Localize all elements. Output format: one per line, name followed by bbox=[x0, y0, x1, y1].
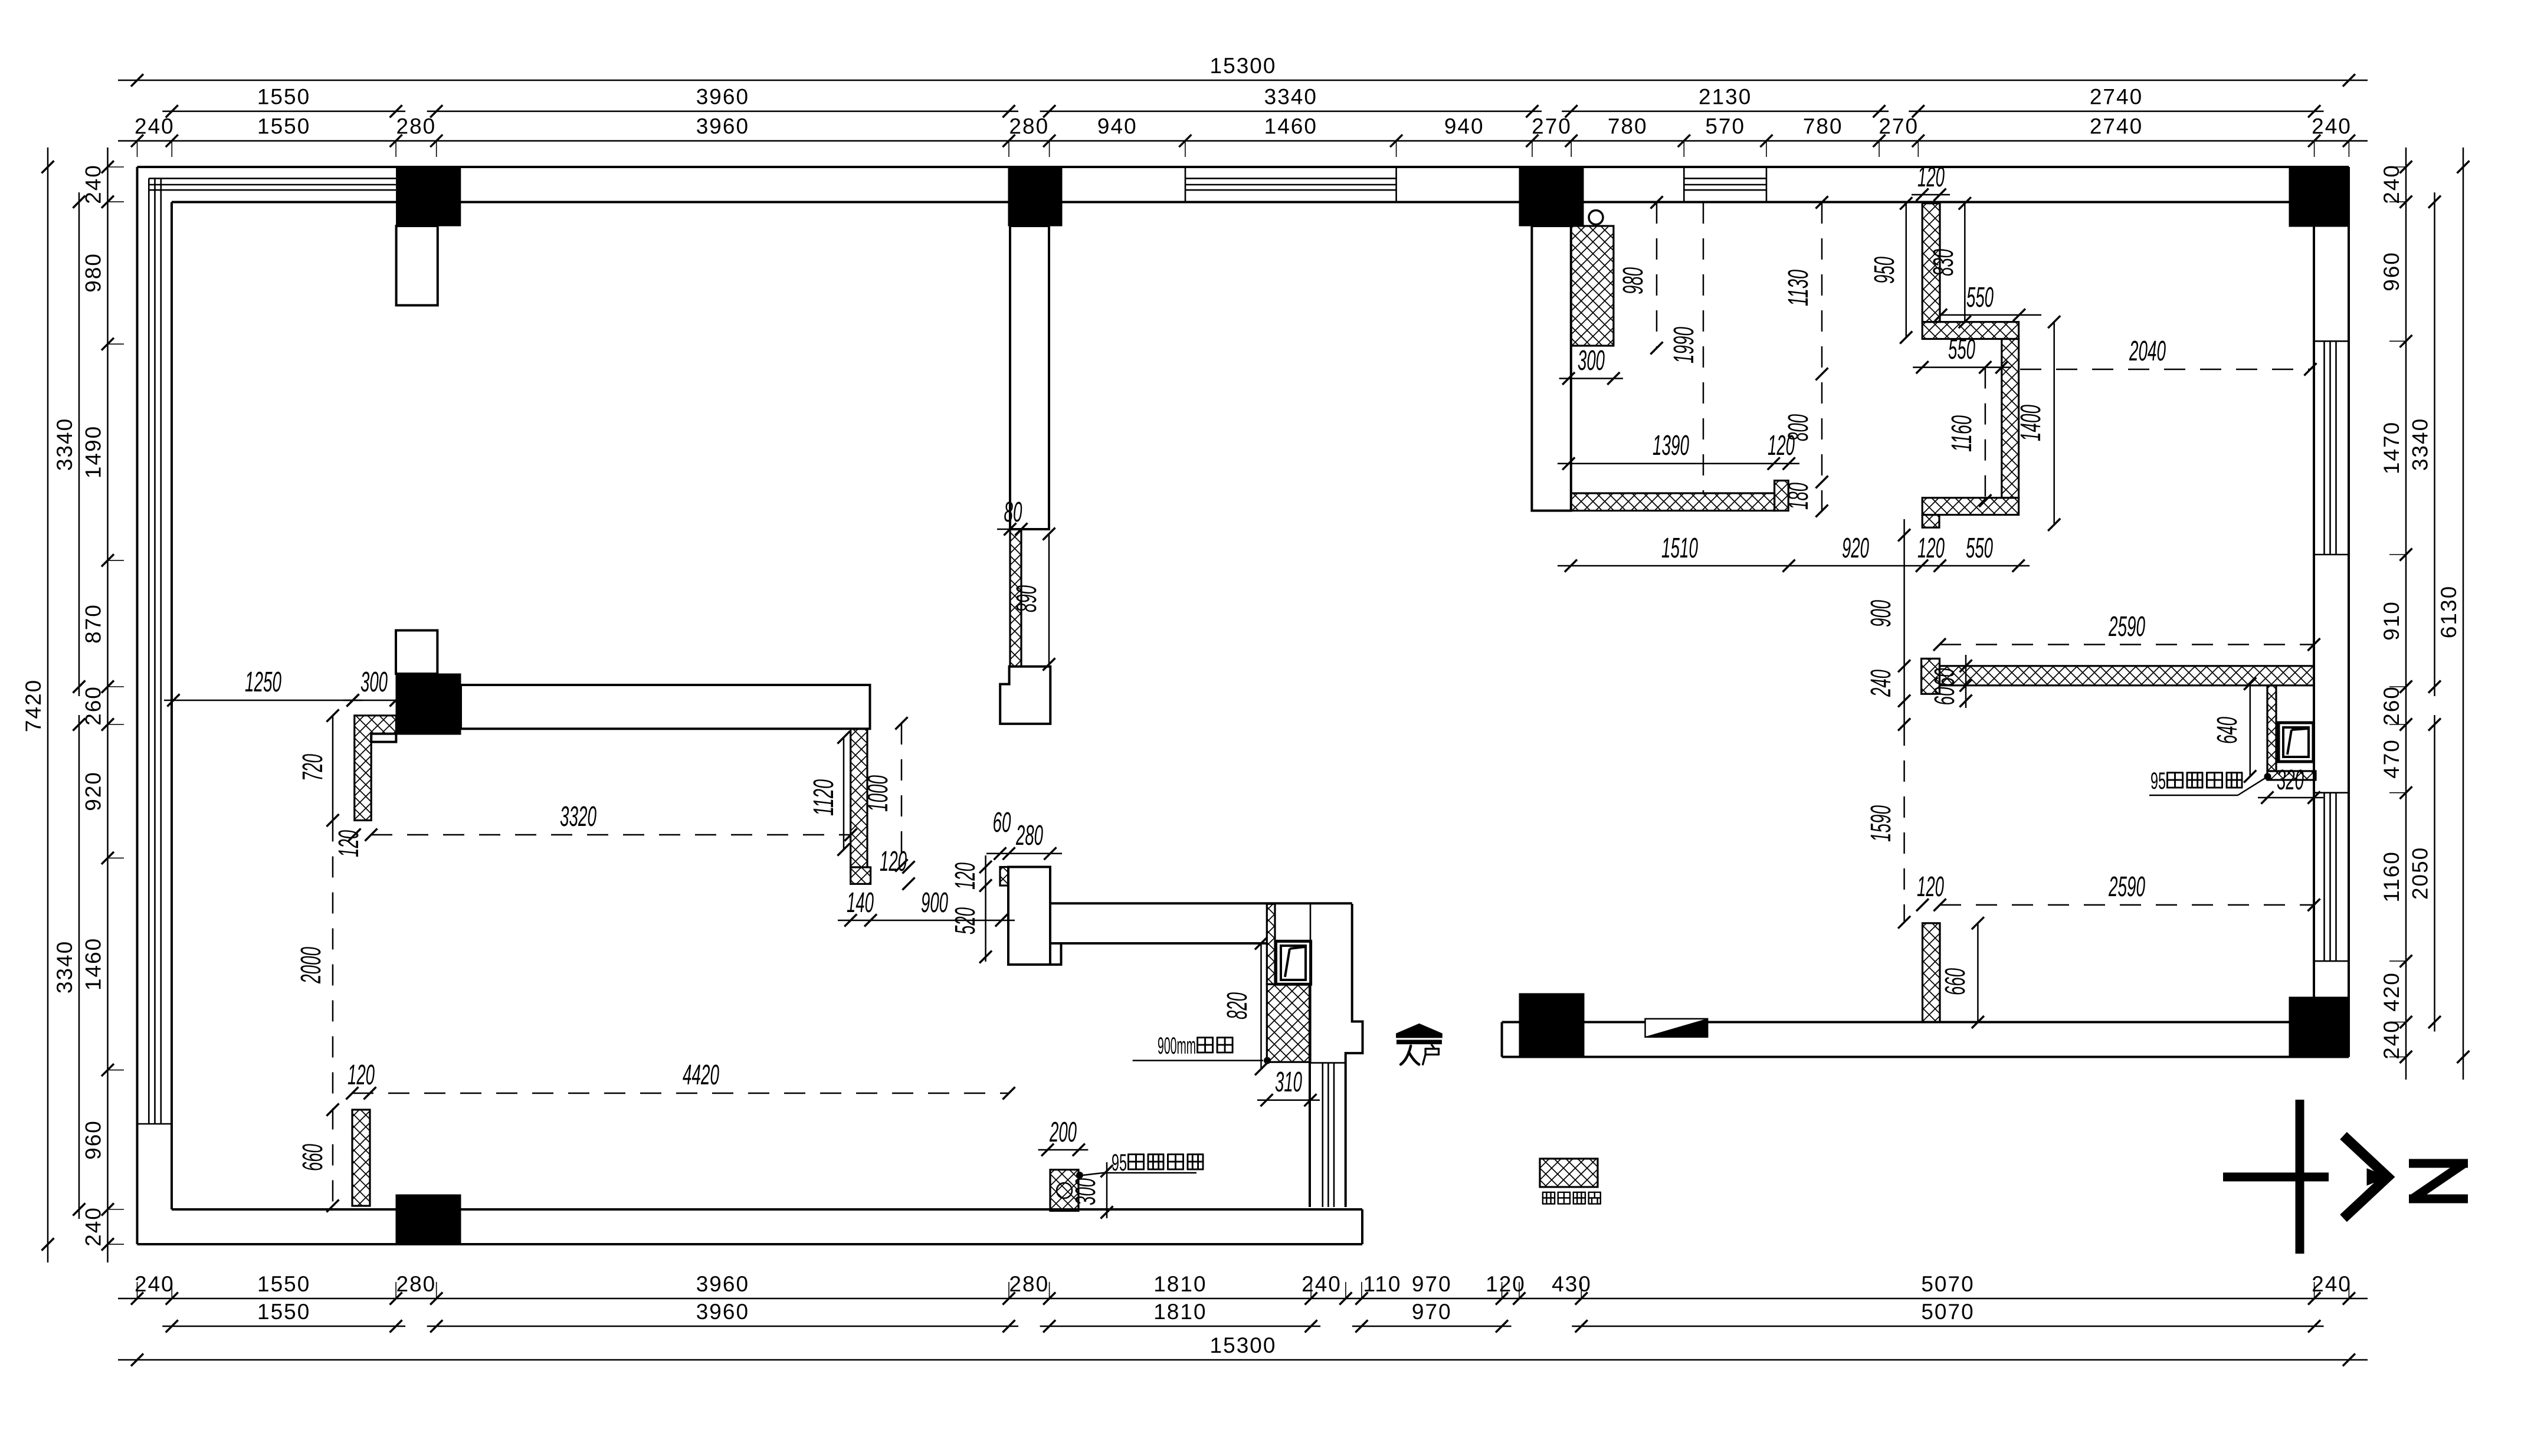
svg-text:470: 470 bbox=[2379, 739, 2404, 779]
svg-text:910: 910 bbox=[2379, 601, 2404, 641]
svg-text:1400: 1400 bbox=[2015, 405, 2047, 441]
svg-text:300: 300 bbox=[360, 667, 388, 698]
svg-text:7420: 7420 bbox=[21, 679, 45, 732]
svg-text:240: 240 bbox=[81, 1206, 106, 1247]
svg-text:950: 950 bbox=[1869, 257, 1900, 284]
svg-text:240: 240 bbox=[81, 164, 106, 204]
svg-text:240: 240 bbox=[2312, 1272, 2352, 1296]
svg-text:120: 120 bbox=[880, 846, 907, 877]
svg-text:240: 240 bbox=[2379, 1019, 2404, 1060]
svg-text:3340: 3340 bbox=[53, 940, 77, 993]
svg-text:970: 970 bbox=[1412, 1300, 1452, 1324]
svg-text:3340: 3340 bbox=[2408, 418, 2433, 471]
svg-text:940: 940 bbox=[1097, 114, 1137, 139]
svg-text:660: 660 bbox=[1940, 968, 1971, 995]
svg-text:2590: 2590 bbox=[2108, 871, 2145, 903]
svg-text:80: 80 bbox=[1004, 497, 1022, 528]
svg-text:3960: 3960 bbox=[696, 85, 749, 109]
svg-text:1160: 1160 bbox=[1946, 415, 1978, 452]
svg-text:1550: 1550 bbox=[257, 114, 310, 139]
svg-text:1550: 1550 bbox=[257, 1300, 310, 1324]
svg-text:2740: 2740 bbox=[2090, 114, 2143, 139]
svg-text:1510: 1510 bbox=[1661, 533, 1698, 564]
svg-text:780: 780 bbox=[1608, 114, 1648, 139]
svg-text:830: 830 bbox=[1928, 249, 1959, 276]
svg-text:960: 960 bbox=[2379, 251, 2404, 291]
svg-text:980: 980 bbox=[1618, 267, 1649, 294]
svg-text:3960: 3960 bbox=[696, 1300, 749, 1324]
svg-text:95: 95 bbox=[2150, 768, 2166, 794]
svg-text:120: 120 bbox=[348, 1060, 375, 1091]
svg-text:260: 260 bbox=[81, 686, 106, 726]
svg-text:60: 60 bbox=[1929, 687, 1961, 705]
svg-text:1810: 1810 bbox=[1153, 1272, 1207, 1296]
svg-text:970: 970 bbox=[1412, 1272, 1452, 1296]
svg-text:1250: 1250 bbox=[245, 667, 281, 698]
svg-text:240: 240 bbox=[1302, 1272, 1342, 1296]
svg-text:240: 240 bbox=[2312, 114, 2352, 139]
svg-text:430: 430 bbox=[1552, 1272, 1592, 1296]
svg-text:3960: 3960 bbox=[696, 114, 749, 139]
svg-text:1550: 1550 bbox=[257, 85, 310, 109]
svg-text:2000: 2000 bbox=[296, 947, 327, 984]
svg-text:1460: 1460 bbox=[1264, 114, 1317, 139]
svg-text:2040: 2040 bbox=[2129, 336, 2166, 367]
svg-text:940: 940 bbox=[1444, 114, 1484, 139]
svg-text:890: 890 bbox=[1011, 585, 1043, 612]
svg-text:120: 120 bbox=[1917, 871, 1944, 903]
svg-text:820: 820 bbox=[1222, 992, 1253, 1019]
svg-text:240: 240 bbox=[2379, 164, 2404, 204]
svg-text:420: 420 bbox=[2379, 972, 2404, 1012]
svg-text:900: 900 bbox=[921, 887, 948, 919]
svg-text:140: 140 bbox=[847, 887, 874, 919]
svg-text:200: 200 bbox=[1049, 1117, 1077, 1148]
svg-text:120: 120 bbox=[1917, 533, 1945, 564]
svg-text:4420: 4420 bbox=[683, 1060, 719, 1091]
svg-text:3320: 3320 bbox=[560, 801, 596, 832]
svg-text:240: 240 bbox=[135, 1272, 175, 1296]
svg-text:660: 660 bbox=[297, 1144, 329, 1171]
svg-text:2050: 2050 bbox=[2408, 847, 2433, 900]
svg-text:1550: 1550 bbox=[257, 1272, 310, 1296]
svg-text:550: 550 bbox=[1966, 533, 1993, 564]
svg-text:280: 280 bbox=[1015, 820, 1043, 851]
svg-text:3340: 3340 bbox=[53, 418, 77, 471]
svg-text:920: 920 bbox=[81, 771, 106, 811]
svg-text:920: 920 bbox=[1842, 533, 1869, 564]
svg-text:1160: 1160 bbox=[2379, 851, 2404, 903]
svg-text:960: 960 bbox=[81, 1120, 106, 1160]
svg-text:1000: 1000 bbox=[863, 775, 894, 812]
svg-text:270: 270 bbox=[1532, 114, 1572, 139]
svg-text:1120: 1120 bbox=[808, 779, 840, 816]
svg-text:800: 800 bbox=[1783, 414, 1814, 441]
svg-text:1490: 1490 bbox=[81, 425, 106, 478]
svg-text:280: 280 bbox=[1009, 1272, 1049, 1296]
svg-text:120: 120 bbox=[950, 863, 981, 890]
svg-text:1810: 1810 bbox=[1153, 1300, 1207, 1324]
svg-text:1590: 1590 bbox=[1866, 805, 1897, 842]
svg-text:720: 720 bbox=[297, 754, 329, 781]
svg-text:280: 280 bbox=[1009, 114, 1049, 139]
svg-text:900: 900 bbox=[1866, 600, 1897, 627]
svg-text:320: 320 bbox=[2277, 765, 2304, 796]
svg-text:520: 520 bbox=[950, 907, 981, 934]
svg-text:900mm: 900mm bbox=[1158, 1033, 1196, 1059]
svg-text:780: 780 bbox=[1803, 114, 1843, 139]
svg-text:280: 280 bbox=[396, 114, 437, 139]
svg-text:1460: 1460 bbox=[81, 937, 106, 991]
svg-text:2130: 2130 bbox=[1699, 85, 1752, 109]
svg-text:550: 550 bbox=[1966, 282, 1994, 313]
svg-text:120: 120 bbox=[333, 830, 365, 857]
svg-text:640: 640 bbox=[2212, 717, 2243, 744]
svg-text:1130: 1130 bbox=[1783, 270, 1814, 306]
svg-text:300: 300 bbox=[1578, 345, 1605, 376]
svg-text:180: 180 bbox=[1783, 483, 1814, 510]
svg-text:870: 870 bbox=[81, 604, 106, 644]
svg-text:240: 240 bbox=[135, 114, 175, 139]
svg-text:2740: 2740 bbox=[2090, 85, 2143, 109]
svg-text:280: 280 bbox=[396, 1272, 437, 1296]
svg-text:6130: 6130 bbox=[2437, 585, 2461, 638]
svg-text:3960: 3960 bbox=[696, 1272, 749, 1296]
svg-text:980: 980 bbox=[81, 252, 106, 293]
svg-text:1390: 1390 bbox=[1653, 430, 1689, 461]
svg-text:570: 570 bbox=[1705, 114, 1745, 139]
svg-text:95: 95 bbox=[1112, 1150, 1127, 1176]
svg-text:15300: 15300 bbox=[1210, 1333, 1277, 1357]
svg-text:2590: 2590 bbox=[2108, 611, 2145, 642]
svg-text:15300: 15300 bbox=[1210, 54, 1277, 78]
svg-text:5070: 5070 bbox=[1921, 1272, 1974, 1296]
svg-text:110: 110 bbox=[1363, 1272, 1402, 1296]
svg-text:260: 260 bbox=[2379, 686, 2404, 726]
svg-text:5070: 5070 bbox=[1921, 1300, 1974, 1324]
svg-text:270: 270 bbox=[1879, 114, 1919, 139]
svg-text:1990: 1990 bbox=[1668, 327, 1700, 363]
svg-text:550: 550 bbox=[1948, 334, 1975, 365]
svg-text:120: 120 bbox=[1917, 162, 1945, 193]
svg-text:310: 310 bbox=[1275, 1067, 1302, 1098]
svg-text:60: 60 bbox=[1929, 668, 1961, 686]
svg-text:60: 60 bbox=[993, 807, 1011, 838]
svg-text:3340: 3340 bbox=[1264, 85, 1317, 109]
svg-text:240: 240 bbox=[1866, 670, 1897, 697]
svg-text:1470: 1470 bbox=[2379, 421, 2404, 474]
